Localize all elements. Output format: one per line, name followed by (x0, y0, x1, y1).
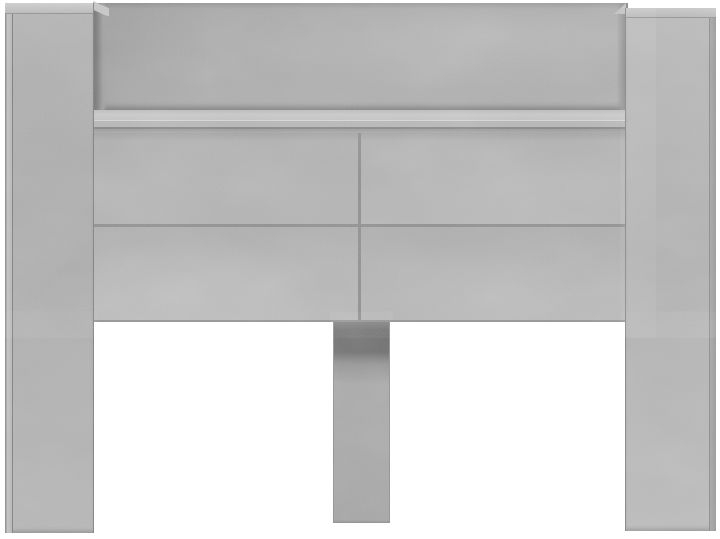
door-top-right (361, 133, 628, 224)
right-pillar (625, 8, 716, 531)
left-pillar-top-face (5, 3, 93, 14)
right-pillar-side-face (709, 8, 716, 531)
niche-back-panel (93, 3, 628, 110)
left-pillar-side-face (5, 3, 13, 533)
shelf-front-edge (93, 120, 628, 129)
door-section (92, 133, 628, 322)
right-pillar-top-face (626, 8, 716, 18)
center-support-leg (333, 322, 390, 523)
product-photo-headboard-cabinet (0, 0, 720, 539)
niche-left-wall-shadow (93, 3, 107, 110)
door-bottom-left (92, 227, 358, 320)
door-top-left (92, 133, 358, 224)
left-pillar (5, 3, 94, 533)
shelf-top-surface (93, 110, 628, 120)
door-bottom-right (361, 227, 628, 320)
